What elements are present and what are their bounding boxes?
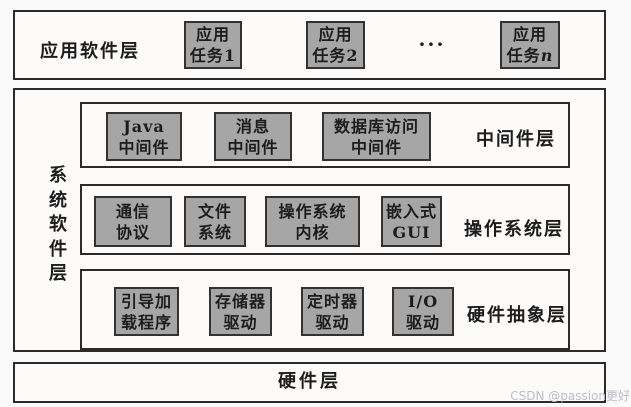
app-task-1-text: 任务1	[190, 46, 236, 65]
app-task-2-line1: 应用	[318, 24, 352, 45]
app-task-2-text: 任务2	[312, 46, 358, 65]
file-system-line1: 文件	[198, 201, 232, 222]
os-kernel-line1: 操作系统	[278, 201, 346, 222]
app-task-2-line2: 任务2	[312, 45, 358, 66]
embedded-software-architecture-diagram: 应用软件层 应用 任务1 应用 任务2 ··· 应用 任务n 系统软件层 Jav…	[0, 0, 631, 407]
os-kernel-line2: 内核	[295, 222, 329, 243]
hardware-abstraction-layer-box: 引导加 载程序 存储器 驱动 定时器 驱动 I/O 驱动 硬件抽象层	[80, 269, 570, 350]
ellipsis: ···	[411, 32, 453, 56]
timer-driver-line1: 定时器	[307, 291, 358, 312]
io-driver-box: I/O 驱动	[392, 287, 454, 336]
io-driver-line2: 驱动	[406, 312, 440, 333]
timer-driver-line2: 驱动	[315, 312, 349, 333]
message-middleware-line2: 中间件	[227, 137, 278, 158]
communication-protocol-box: 通信 协议	[94, 196, 172, 247]
application-layer-label: 应用软件层	[40, 37, 140, 63]
system-software-layer-box: 系统软件层 Java 中间件 消息 中间件 数据库访问 中间件 中间件层 通信 …	[13, 88, 606, 352]
database-access-middleware-line2: 中间件	[351, 137, 402, 158]
app-task-1-line1: 应用	[196, 24, 230, 45]
app-task-1-line2: 任务1	[190, 45, 236, 66]
application-software-layer-box: 应用软件层 应用 任务1 应用 任务2 ··· 应用 任务n	[13, 10, 606, 80]
file-system-line2: 系统	[198, 222, 232, 243]
embedded-gui-line1: 嵌入式	[386, 201, 437, 222]
memory-driver-box: 存储器 驱动	[209, 287, 272, 336]
middleware-layer-box: Java 中间件 消息 中间件 数据库访问 中间件 中间件层	[80, 102, 570, 168]
app-task-n-line1: 应用	[513, 24, 547, 45]
operating-system-layer-label: 操作系统层	[459, 215, 569, 241]
app-task-1-box: 应用 任务1	[184, 21, 242, 69]
app-task-n-text: 任务	[507, 46, 541, 65]
timer-driver-box: 定时器 驱动	[301, 287, 364, 336]
embedded-gui-box: 嵌入式 GUI	[381, 196, 442, 247]
database-access-middleware-line1: 数据库访问	[334, 116, 419, 137]
hardware-layer-label: 硬件层	[278, 364, 341, 400]
app-task-n-suffix: n	[541, 46, 554, 65]
csdn-watermark: CSDN @passion更好	[510, 387, 630, 404]
communication-protocol-line2: 协议	[116, 222, 150, 243]
system-software-layer-label: 系统软件层	[47, 164, 69, 287]
hardware-abstraction-layer-label: 硬件抽象层	[462, 301, 572, 327]
operating-system-layer-box: 通信 协议 文件 系统 操作系统 内核 嵌入式 GUI 操作系统层	[80, 184, 570, 255]
message-middleware-box: 消息 中间件	[214, 112, 292, 161]
bootloader-box: 引导加 载程序	[114, 287, 179, 336]
memory-driver-line2: 驱动	[223, 312, 257, 333]
app-task-n-box: 应用 任务n	[500, 21, 560, 69]
communication-protocol-line1: 通信	[116, 201, 150, 222]
java-middleware-line2: 中间件	[118, 137, 169, 158]
bootloader-line2: 载程序	[121, 312, 172, 333]
java-middleware-line1: Java	[123, 116, 165, 137]
file-system-box: 文件 系统	[184, 196, 246, 247]
os-kernel-box: 操作系统 内核	[265, 196, 360, 247]
memory-driver-line1: 存储器	[215, 291, 266, 312]
middleware-layer-label: 中间件层	[461, 125, 571, 151]
app-task-2-box: 应用 任务2	[306, 21, 365, 69]
app-task-n-line2: 任务n	[507, 45, 554, 66]
io-driver-line1: I/O	[408, 291, 438, 312]
embedded-gui-line2: GUI	[392, 222, 430, 243]
message-middleware-line1: 消息	[236, 116, 270, 137]
database-access-middleware-box: 数据库访问 中间件	[322, 112, 431, 161]
java-middleware-box: Java 中间件	[106, 112, 182, 161]
bootloader-line1: 引导加	[121, 291, 172, 312]
